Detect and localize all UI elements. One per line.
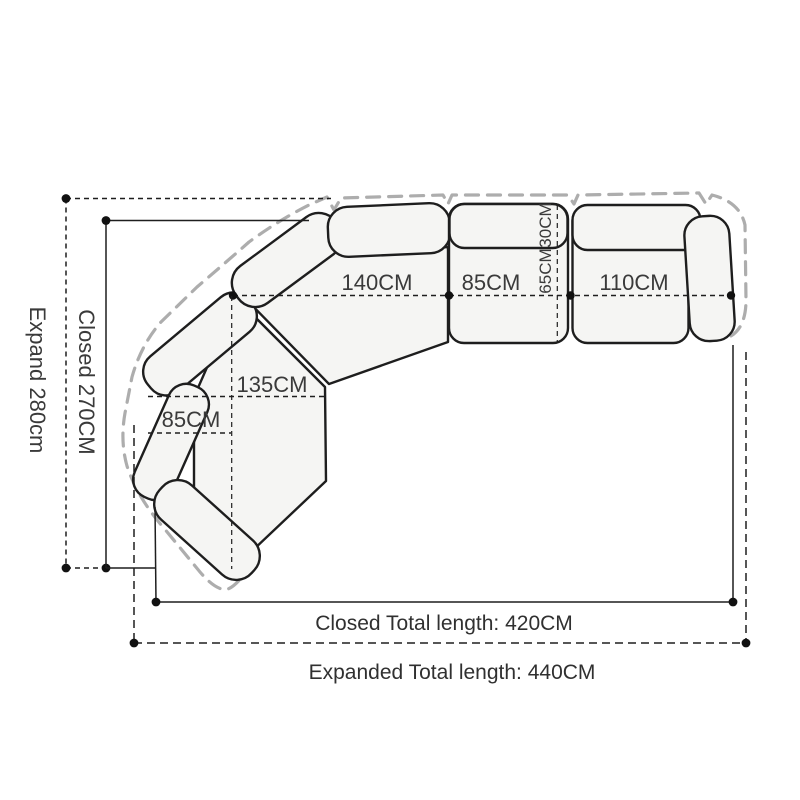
- dim-dot: [62, 194, 71, 203]
- dim-dot: [62, 564, 71, 573]
- dim-dot: [102, 216, 111, 225]
- dim-dot: [229, 291, 237, 299]
- label-seat-depth-65: 65CM: [536, 248, 555, 293]
- dim-dot: [729, 598, 738, 607]
- dim-dot: [742, 639, 751, 648]
- backrest-140: [327, 202, 451, 257]
- label-corner-135: 135CM: [237, 372, 308, 397]
- label-closed-total: Closed Total length: 420CM: [315, 612, 573, 635]
- right-armrest: [683, 215, 736, 343]
- label-seat-110: 110CM: [599, 270, 668, 295]
- label-seat-85-right: 85CM: [462, 270, 521, 295]
- label-seat-140: 140CM: [342, 270, 413, 295]
- diagram-canvas: 140CM 85CM 110CM 30CM 65CM 135CM 85CM Cl…: [0, 0, 800, 800]
- dim-dot: [130, 639, 139, 648]
- dim-dot: [566, 291, 574, 299]
- label-chaise-85-left: 85CM: [162, 407, 221, 432]
- dim-dot: [445, 291, 453, 299]
- label-expanded-total: Expanded Total length: 440CM: [309, 661, 596, 684]
- backrest-110: [573, 205, 701, 250]
- label-closed-side: Closed 270CM: [74, 309, 99, 455]
- dim-dot: [727, 291, 735, 299]
- dim-closed-drop-left: [155, 507, 156, 602]
- label-back-depth-30: 30CM: [536, 202, 555, 247]
- dim-dot: [152, 598, 161, 607]
- label-expand-side: Expand 280cm: [25, 307, 50, 454]
- sofa-dimension-diagram: 140CM 85CM 110CM 30CM 65CM 135CM 85CM Cl…: [0, 0, 800, 800]
